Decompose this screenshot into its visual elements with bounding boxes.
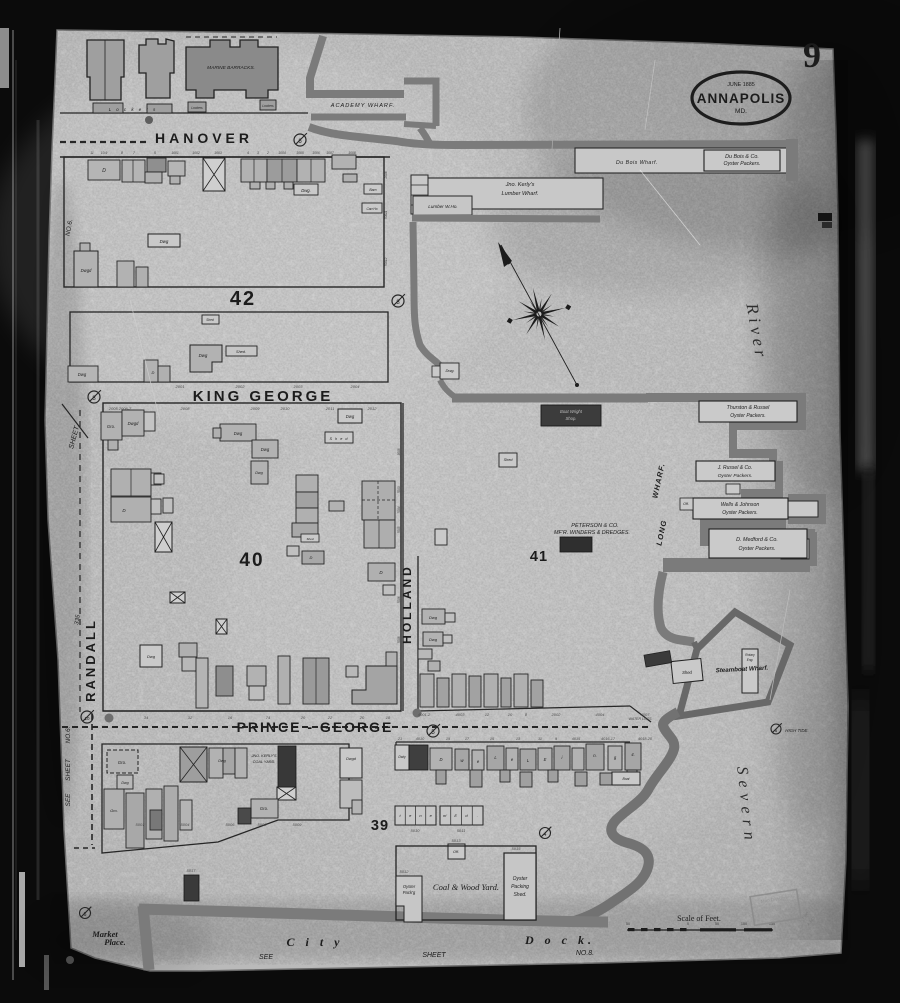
- svg-text:D: D: [102, 168, 106, 174]
- svg-text:18: 18: [386, 715, 391, 720]
- svg-text:Oyster Packers.: Oyster Packers.: [724, 161, 761, 167]
- svg-text:50: 50: [626, 922, 630, 926]
- svg-text:MD.: MD.: [735, 108, 747, 115]
- svg-text:RANDALL: RANDALL: [83, 618, 98, 702]
- svg-text:Jno. Kerly's: Jno. Kerly's: [505, 182, 535, 188]
- svg-text:Oyster Packers.: Oyster Packers.: [730, 413, 766, 419]
- svg-text:5006: 5006: [226, 822, 236, 827]
- svg-text:Dwg: Dwg: [255, 471, 263, 475]
- svg-text:JNO. KERLY'S: JNO. KERLY'S: [250, 754, 277, 758]
- svg-text:22: 22: [327, 715, 333, 720]
- svg-text:Dwg: Dwg: [78, 372, 87, 377]
- svg-text:9: 9: [803, 35, 821, 75]
- svg-text:100: 100: [741, 922, 747, 926]
- svg-text:HOLLAND: HOLLAND: [400, 564, 414, 644]
- svg-text:4018-20: 4018-20: [638, 737, 653, 741]
- svg-text:JUNE 1885: JUNE 1885: [727, 82, 755, 88]
- svg-text:Wells & Johnson: Wells & Johnson: [721, 502, 760, 508]
- svg-text:HIGH TIDE.: HIGH TIDE.: [785, 728, 808, 733]
- svg-text:4.: 4.: [631, 752, 635, 757]
- svg-text:39: 39: [371, 818, 389, 834]
- svg-text:7003: 7003: [397, 486, 401, 493]
- svg-text:Gro.: Gro.: [107, 424, 115, 429]
- svg-text:1003: 1003: [214, 151, 222, 155]
- svg-text:7005: 7005: [397, 526, 401, 533]
- svg-text:5004: 5004: [181, 822, 191, 827]
- svg-text:1007: 1007: [326, 151, 334, 155]
- svg-text:2008: 2008: [180, 406, 191, 411]
- svg-text:5: 5: [154, 151, 156, 155]
- svg-text:21: 21: [397, 737, 402, 741]
- svg-text:Dwg: Dwg: [261, 447, 270, 452]
- svg-text:Thurston & Russel: Thurston & Russel: [727, 405, 771, 411]
- svg-text:PRINCE - GEORGE: PRINCE - GEORGE: [237, 719, 394, 735]
- svg-text:0: 0: [687, 922, 689, 926]
- svg-text:41: 41: [530, 549, 548, 565]
- svg-text:4003: 4003: [456, 712, 466, 717]
- svg-text:SEE: SEE: [65, 793, 72, 807]
- svg-text:2012: 2012: [367, 406, 378, 411]
- svg-text:5001: 5001: [136, 822, 145, 827]
- svg-text:E: E: [454, 813, 457, 818]
- svg-text:Shed: Shed: [682, 670, 692, 675]
- svg-text:Shed.: Shed.: [513, 892, 526, 898]
- svg-text:NO.6.: NO.6.: [65, 726, 72, 743]
- svg-text:4010: 4010: [416, 737, 425, 741]
- svg-text:7: 7: [133, 151, 135, 155]
- svg-text:Eng.: Eng.: [747, 658, 754, 662]
- svg-text:S h e d: S h e d: [329, 437, 348, 441]
- svg-text:Shed: Shed: [504, 458, 514, 462]
- svg-text:Off.: Off.: [453, 850, 459, 854]
- svg-text:20: 20: [359, 715, 365, 720]
- svg-text:34: 34: [144, 715, 149, 720]
- svg-text:.: .: [477, 813, 478, 818]
- svg-text:C i t y: C i t y: [287, 935, 344, 949]
- svg-text:Oyster Packers.: Oyster Packers.: [718, 473, 753, 479]
- svg-text:Carr.Ho: Carr.Ho: [366, 207, 377, 211]
- svg-text:1002: 1002: [192, 151, 200, 155]
- svg-text:2002: 2002: [235, 384, 246, 389]
- svg-text:2004: 2004: [350, 384, 361, 389]
- svg-text:1008: 1008: [348, 151, 356, 155]
- svg-text:2010: 2010: [280, 406, 291, 411]
- svg-text:5017: 5017: [187, 868, 197, 873]
- svg-text:10: 10: [508, 712, 513, 717]
- svg-text:Dwg: Dwg: [147, 654, 156, 659]
- svg-text:12: 12: [485, 712, 490, 717]
- svg-text:Shed.: Shed.: [236, 350, 246, 354]
- svg-text:5008: 5008: [258, 822, 268, 827]
- svg-text:Dwly: Dwly: [398, 755, 406, 759]
- svg-text:1006: 1006: [312, 151, 320, 155]
- svg-text:Dwgd: Dwgd: [346, 757, 357, 761]
- svg-text:MF'R. WINDERS & DREDGES.: MF'R. WINDERS & DREDGES.: [554, 530, 630, 536]
- svg-text:2001: 2001: [175, 384, 185, 389]
- svg-text:n.: n.: [593, 753, 597, 758]
- svg-text:SHEET: SHEET: [422, 952, 446, 959]
- svg-text:Shed: Shed: [306, 537, 313, 541]
- svg-text:J. Russel & Co.: J. Russel & Co.: [717, 465, 752, 471]
- svg-text:1004: 1004: [278, 151, 286, 155]
- svg-text:Dwg.: Dwg.: [301, 188, 311, 193]
- svg-text:2003: 2003: [293, 384, 304, 389]
- svg-text:11: 11: [538, 737, 542, 741]
- svg-text:7004: 7004: [397, 506, 401, 513]
- svg-text:Dwg: Dwg: [429, 637, 438, 642]
- svg-text:74: 74: [266, 715, 271, 720]
- svg-text:E: E: [544, 757, 547, 762]
- svg-text:Dwg: Dwg: [429, 615, 438, 620]
- svg-text:Place.: Place.: [104, 937, 125, 947]
- svg-text:20: 20: [300, 715, 306, 720]
- svg-text:40: 40: [239, 550, 264, 571]
- svg-text:Lumber Wharf.: Lumber Wharf.: [502, 191, 539, 197]
- svg-text:SEE: SEE: [259, 954, 273, 961]
- svg-text:4004: 4004: [596, 712, 606, 717]
- svg-text:2002: 2002: [551, 712, 562, 717]
- svg-text:MARINE BARRACKS.: MARINE BARRACKS.: [207, 65, 255, 71]
- svg-text:Shed: Shed: [206, 318, 214, 322]
- svg-text:Du Bois Wharf.: Du Bois Wharf.: [616, 160, 658, 166]
- svg-text:70012: 70012: [384, 257, 388, 266]
- svg-text:5010: 5010: [411, 828, 421, 833]
- svg-text:70011: 70011: [384, 210, 388, 219]
- svg-text:32: 32: [188, 715, 193, 720]
- svg-text:8: 8: [121, 151, 123, 155]
- svg-text:Dwg: Dwg: [346, 414, 355, 419]
- svg-text:Lockers: Lockers: [191, 106, 203, 110]
- svg-text:5015: 5015: [512, 846, 522, 851]
- svg-text:SHEET: SHEET: [65, 758, 72, 781]
- svg-text:D o c k.: D o c k.: [524, 933, 595, 947]
- svg-text:50: 50: [715, 922, 719, 926]
- svg-text:10.9: 10.9: [101, 151, 108, 155]
- svg-text:2009: 2009: [250, 406, 261, 411]
- svg-text:D. Medford & Co.: D. Medford & Co.: [736, 537, 778, 543]
- svg-text:Dwg: Dwg: [121, 781, 128, 785]
- svg-text:Gro.: Gro.: [110, 808, 118, 813]
- svg-text:Gro.: Gro.: [260, 806, 268, 811]
- svg-text:ACADEMY WHARF.: ACADEMY WHARF.: [330, 103, 395, 109]
- svg-text:PETERSON & CO.: PETERSON & CO.: [571, 523, 619, 529]
- svg-text:D: D: [310, 555, 313, 560]
- svg-text:42: 42: [230, 288, 256, 310]
- svg-text:Oyster Packers.: Oyster Packers.: [722, 510, 758, 516]
- svg-text:D: D: [439, 757, 442, 762]
- svg-text:4: 4: [247, 151, 249, 155]
- svg-text:1005: 1005: [296, 151, 304, 155]
- svg-text:L o c k e r s: L o c k e r s: [109, 107, 158, 112]
- svg-text:11: 11: [90, 151, 94, 155]
- svg-text:Packing: Packing: [511, 884, 529, 890]
- svg-text:Lockers: Lockers: [262, 104, 274, 108]
- svg-text:Dwg.: Dwg.: [445, 368, 454, 373]
- svg-text:WATER LOTS: WATER LOTS: [628, 717, 652, 721]
- svg-text:2: 2: [266, 151, 269, 155]
- svg-text:Dwg: Dwg: [199, 353, 208, 358]
- svg-text:Barn: Barn: [369, 188, 376, 192]
- svg-text:ANNAPOLIS: ANNAPOLIS: [697, 91, 786, 106]
- svg-text:5012: 5012: [400, 869, 410, 874]
- svg-text:Dwg: Dwg: [218, 759, 226, 763]
- svg-text:5009: 5009: [293, 822, 303, 827]
- svg-text:Dwg: Dwg: [160, 239, 169, 244]
- svg-text:Shop.: Shop.: [566, 416, 577, 421]
- svg-text:4015: 4015: [572, 737, 581, 741]
- svg-text:Gro.: Gro.: [118, 760, 127, 765]
- svg-text:5013: 5013: [452, 838, 462, 843]
- svg-text:D: D: [152, 370, 155, 375]
- svg-text:Off.: Off.: [683, 502, 689, 506]
- svg-text:Boat: Boat: [623, 777, 631, 781]
- svg-text:3008: 3008: [397, 448, 401, 455]
- svg-text:Oyster: Oyster: [403, 884, 416, 889]
- svg-text:Dwgd: Dwgd: [81, 268, 92, 273]
- svg-text:Dwgd: Dwgd: [128, 421, 139, 426]
- svg-text:Coal & Wood Yard.: Coal & Wood Yard.: [433, 882, 499, 892]
- svg-text:Du Bois & Co.: Du Bois & Co.: [725, 154, 759, 160]
- svg-text:NO.8.: NO.8.: [576, 950, 594, 957]
- svg-text:Oyster Packers.: Oyster Packers.: [739, 546, 776, 552]
- svg-text:COAL YARD.: COAL YARD.: [253, 760, 276, 764]
- svg-text:2006: 2006: [384, 171, 388, 179]
- svg-text:5011: 5011: [457, 828, 466, 833]
- svg-text:Lumber W.Ho.: Lumber W.Ho.: [428, 204, 457, 209]
- svg-text:HANOVER: HANOVER: [155, 130, 253, 146]
- svg-text:Pack'g: Pack'g: [403, 890, 416, 895]
- svg-text:1001: 1001: [171, 151, 179, 155]
- svg-text:3: 3: [257, 151, 259, 155]
- svg-text:2011: 2011: [325, 406, 335, 411]
- svg-text:Boat Wright: Boat Wright: [560, 409, 583, 414]
- svg-text:Rotary: Rotary: [745, 653, 755, 657]
- svg-text:16: 16: [228, 715, 233, 720]
- svg-text:4016-17: 4016-17: [601, 737, 616, 741]
- svg-text:Oyster: Oyster: [513, 876, 528, 882]
- svg-text:m': m': [443, 813, 447, 818]
- svg-text:Dwg: Dwg: [234, 431, 243, 436]
- svg-text:4001-2: 4001-2: [418, 712, 431, 717]
